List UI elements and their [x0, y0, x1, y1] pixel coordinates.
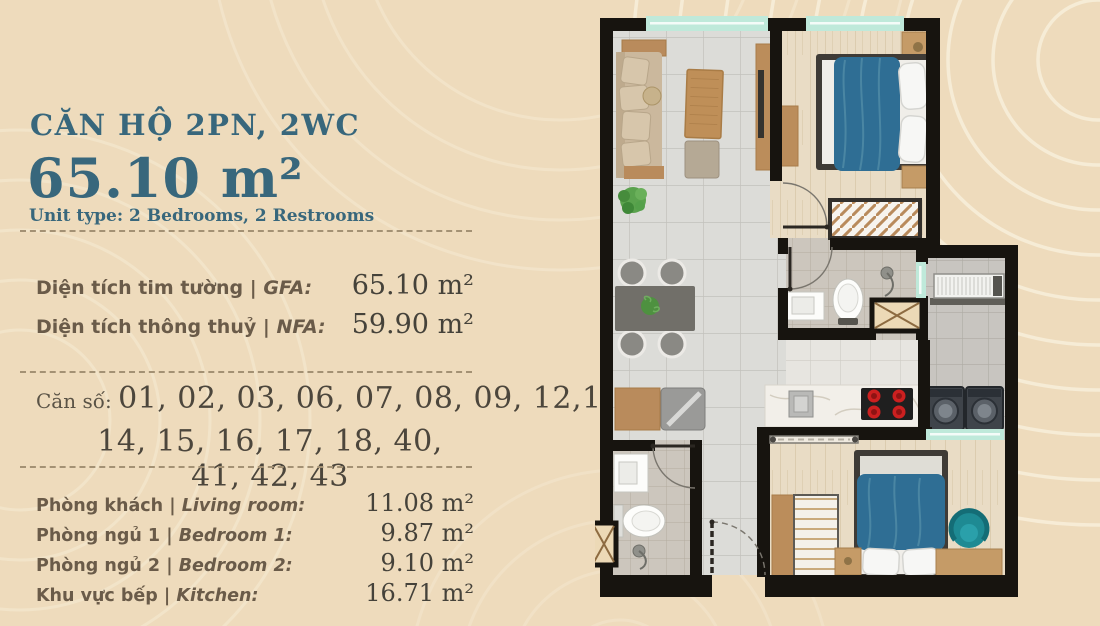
- wall-left: [600, 18, 613, 597]
- ac-unit: [930, 274, 1005, 305]
- bench: [902, 166, 930, 188]
- wall-bathroom1-bottom: [778, 328, 876, 340]
- page-title: CĂN HỘ 2PN, 2WC: [30, 108, 360, 142]
- room-row-bedroom2: Phòng ngủ 2 | Bedroom 2: 9.10 m²: [36, 549, 474, 577]
- wall-bathroom2-top: [613, 440, 655, 451]
- service-shaft: [872, 300, 922, 331]
- side-table: [643, 87, 661, 105]
- pillow: [898, 62, 928, 110]
- bed: [816, 54, 934, 171]
- dining-chair: [619, 260, 645, 286]
- unit-type: Unit type: 2 Bedrooms, 2 Restrooms: [29, 206, 374, 226]
- divider: [20, 230, 472, 232]
- apartment-floor-plan: [595, 15, 1020, 600]
- dining-chair: [619, 331, 645, 357]
- bedroom-2-sliding-door: [770, 436, 858, 443]
- metric-row-gfa: Diện tích tim tường | GFA: 65.10 m²: [36, 270, 474, 301]
- wardrobe: [830, 200, 920, 238]
- plant: [618, 187, 647, 214]
- metric-value: 59.90 m²: [352, 309, 474, 340]
- kitchen-counter: [765, 385, 926, 427]
- divider: [20, 371, 472, 373]
- unit-area: 65.10 m²: [27, 146, 304, 210]
- dresser: [781, 106, 798, 166]
- wall-balcony-left: [918, 340, 930, 440]
- wall-bathroom2-right: [690, 440, 702, 577]
- toilet: [614, 505, 665, 537]
- unit-numbers-line1: Căn số: 01, 02, 03, 06, 07, 08, 09, 12,1…: [36, 381, 506, 416]
- wall-bottom-right: [765, 575, 1018, 597]
- service-shaft: [595, 523, 616, 565]
- pillow: [902, 548, 940, 576]
- kitchen-cabinet: [615, 388, 660, 430]
- metric-value: 65.10 m²: [352, 270, 474, 301]
- pillow: [862, 548, 899, 576]
- wardrobe: [772, 495, 838, 577]
- page: CĂN HỘ 2PN, 2WC 65.10 m² Unit type: 2 Be…: [0, 0, 1100, 626]
- dining-chair: [659, 260, 685, 286]
- bed: [854, 450, 948, 580]
- wall-living-bedroom1: [770, 31, 782, 181]
- cooktop: [861, 388, 913, 420]
- wall-bedroom2-left: [757, 427, 770, 577]
- room-row-kitchen: Khu vực bếp | Kitchen: 16.71 m²: [36, 579, 474, 607]
- room-row-bedroom1: Phòng ngủ 1 | Bedroom 1: 9.87 m²: [36, 519, 474, 547]
- nightstand: [835, 548, 861, 575]
- sofa: [616, 52, 664, 179]
- pillow: [898, 115, 928, 163]
- wall-bottom-left: [600, 575, 712, 597]
- room-label: Phòng ngủ 1 | Bedroom 1:: [36, 526, 293, 546]
- wall-right: [1005, 245, 1018, 597]
- unit-numbers-line2: 14, 15, 16, 17, 18, 40, 41, 42, 43: [70, 424, 470, 494]
- room-label: Phòng khách | Living room:: [36, 496, 305, 516]
- room-label: Khu vực bếp | Kitchen:: [36, 586, 259, 606]
- desk: [936, 549, 1002, 578]
- metric-label: Diện tích tim tường | GFA:: [36, 277, 312, 299]
- wall-right-top: [926, 18, 940, 258]
- unit-numbers-label: Căn số:: [36, 389, 118, 413]
- ottoman: [685, 141, 719, 178]
- bathroom-sink: [784, 292, 824, 320]
- kitchen-furniture: [615, 385, 926, 430]
- tv-cabinet: [756, 44, 772, 170]
- room-value: 9.87 m²: [381, 519, 474, 547]
- kitchen-floor: [786, 340, 918, 387]
- coffee-table: [685, 69, 723, 138]
- divider: [20, 466, 472, 468]
- room-row-living: Phòng khách | Living room: 11.08 m²: [36, 489, 474, 517]
- armchair: [951, 511, 987, 548]
- refrigerator: [661, 388, 705, 430]
- tv: [758, 70, 764, 138]
- room-value: 9.10 m²: [381, 549, 474, 577]
- room-value: 11.08 m²: [365, 489, 474, 517]
- washing-machine: [966, 387, 1003, 430]
- info-panel: CĂN HỘ 2PN, 2WC 65.10 m² Unit type: 2 Be…: [0, 0, 560, 626]
- room-label: Phòng ngủ 2 | Bedroom 2:: [36, 556, 293, 576]
- metric-label: Diện tích thông thuỷ | NFA:: [36, 316, 326, 338]
- bathroom-sink: [614, 454, 648, 492]
- dining-chair: [659, 331, 685, 357]
- washing-machine: [927, 387, 964, 430]
- metric-row-nfa: Diện tích thông thuỷ | NFA: 59.90 m²: [36, 309, 474, 340]
- room-value: 16.71 m²: [365, 579, 474, 607]
